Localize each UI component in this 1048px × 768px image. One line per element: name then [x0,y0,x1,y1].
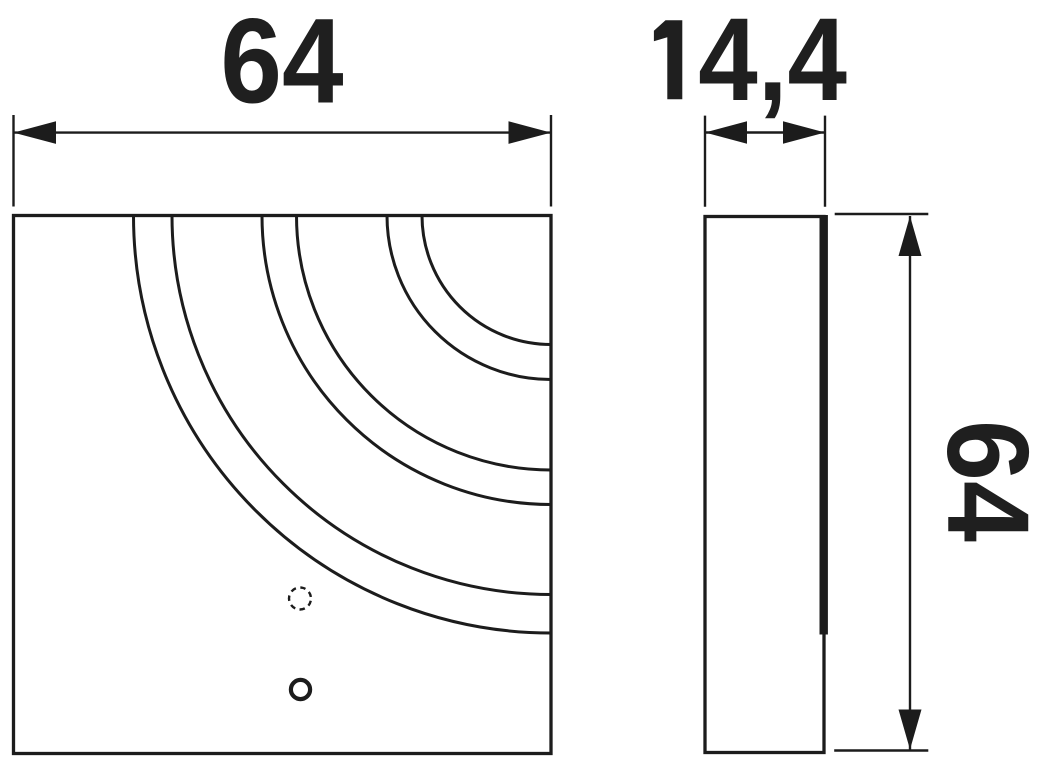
svg-text:64: 64 [924,420,1048,542]
svg-text:64: 64 [220,0,343,129]
svg-text:4,4: 4,4 [698,0,847,125]
